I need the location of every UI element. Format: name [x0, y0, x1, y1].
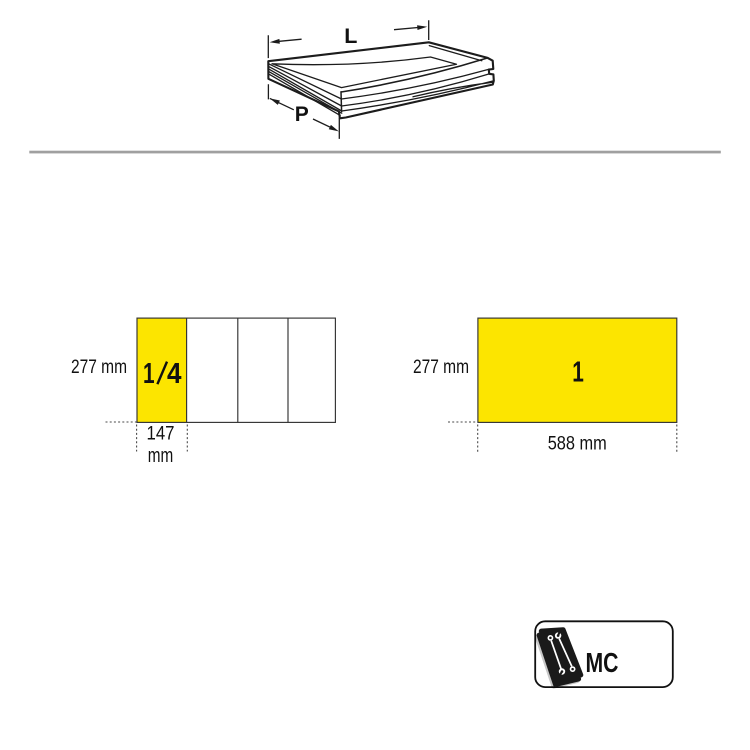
svg-text:277 mm: 277 mm: [71, 357, 127, 378]
svg-text:P: P: [295, 103, 309, 126]
svg-text:147: 147: [147, 424, 175, 445]
svg-text:1: 1: [572, 357, 584, 389]
svg-text:MC: MC: [586, 647, 619, 678]
svg-text:4: 4: [167, 358, 182, 390]
svg-text:L: L: [344, 24, 357, 48]
svg-text:588 mm: 588 mm: [548, 434, 607, 455]
svg-text:277 mm: 277 mm: [413, 357, 469, 378]
svg-text:mm: mm: [148, 445, 174, 467]
svg-text:1: 1: [143, 358, 155, 390]
